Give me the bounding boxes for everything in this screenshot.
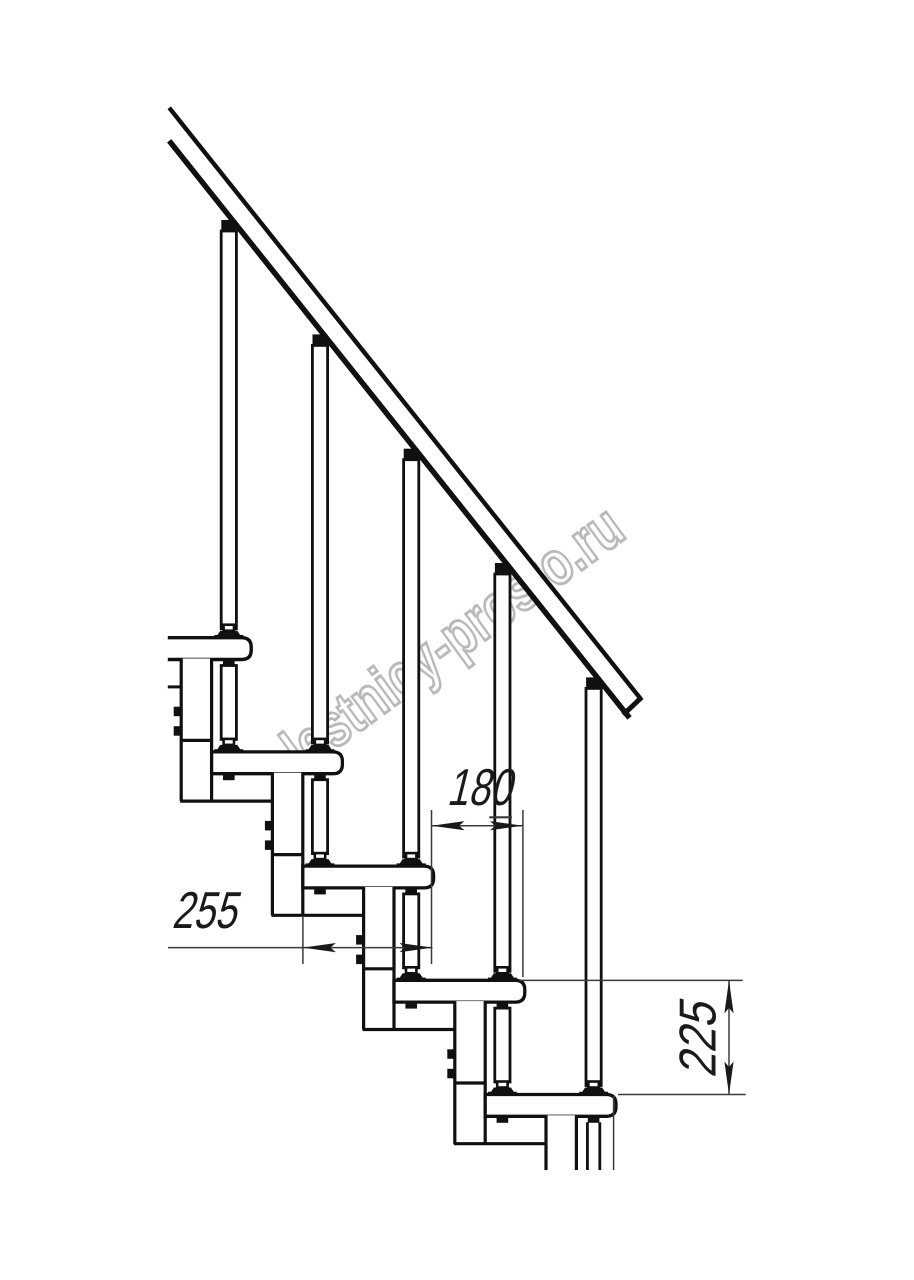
svg-text:225: 225 <box>669 992 727 1081</box>
svg-text:255: 255 <box>169 881 248 939</box>
